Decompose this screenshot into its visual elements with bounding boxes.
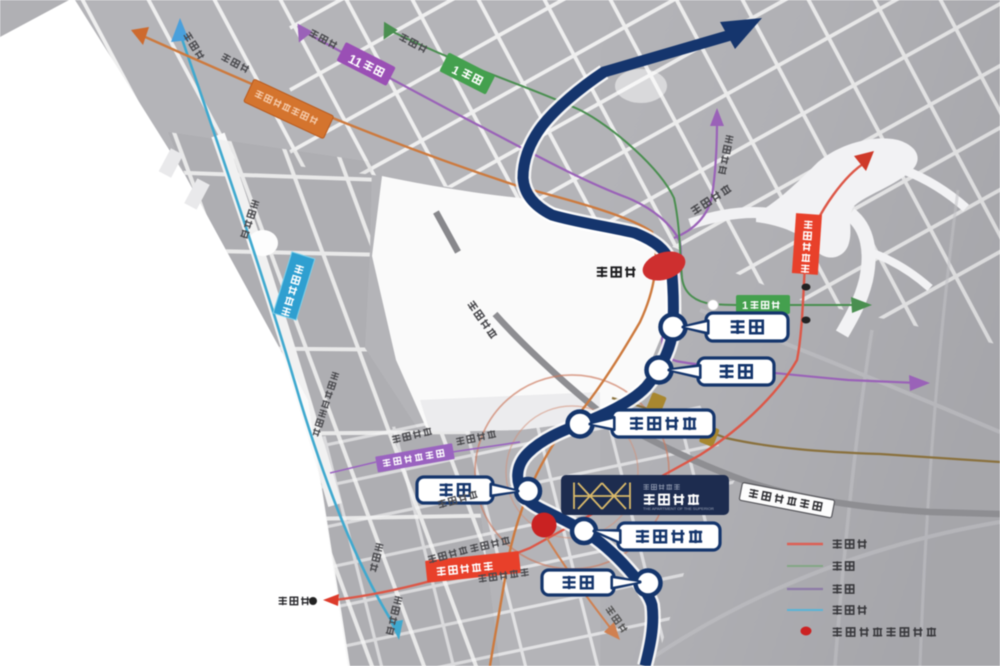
svg-text:1: 1 — [742, 300, 748, 312]
svg-text:THE APARTMENT OF THE SUPERIOR: THE APARTMENT OF THE SUPERIOR — [643, 506, 714, 511]
